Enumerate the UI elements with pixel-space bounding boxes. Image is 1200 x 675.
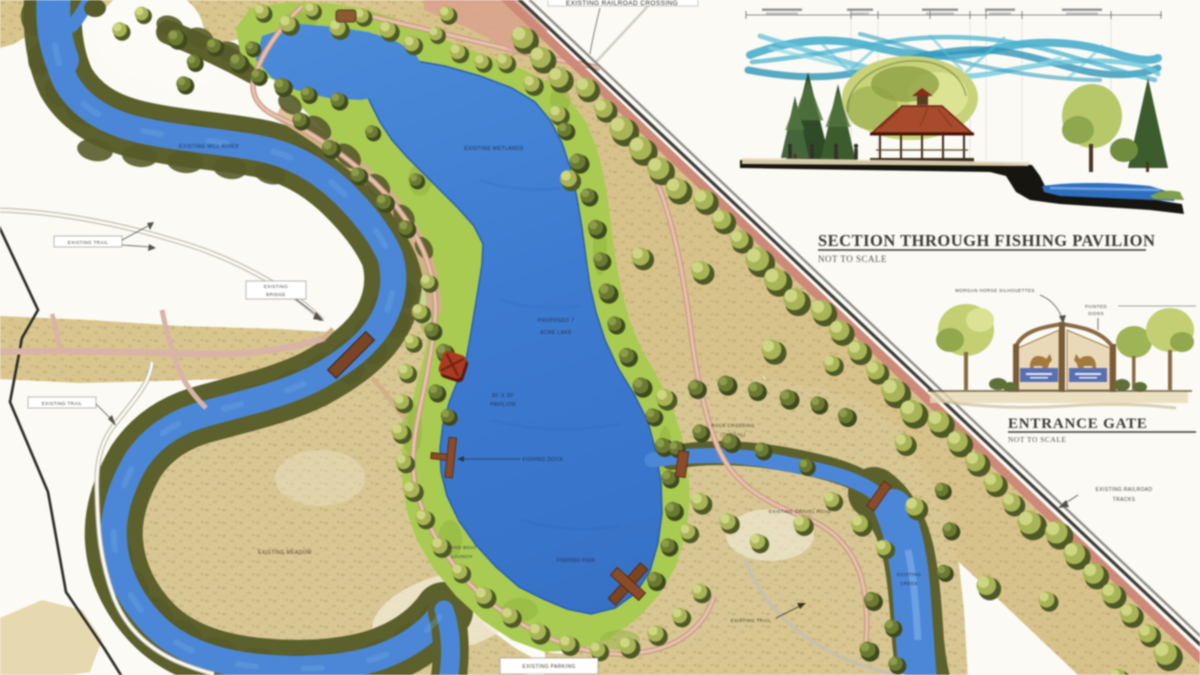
svg-text:PAINTED: PAINTED (1085, 304, 1107, 309)
svg-text:EXISTING GRAVEL ROAD: EXISTING GRAVEL ROAD (769, 509, 832, 514)
svg-text:SECTION THROUGH FISHING PAVILI: SECTION THROUGH FISHING PAVILION (818, 231, 1155, 250)
svg-text:ROCK CROSSING: ROCK CROSSING (711, 423, 755, 428)
svg-text:EXISTING PARKING: EXISTING PARKING (522, 664, 575, 670)
svg-text:(TYPICAL): (TYPICAL) (720, 432, 745, 437)
svg-text:ACRE LAKE: ACRE LAKE (540, 330, 572, 336)
svg-text:EXISTING: EXISTING (264, 284, 288, 289)
svg-text:LAUNCH: LAUNCH (452, 554, 473, 559)
svg-text:EXISTING: EXISTING (897, 572, 921, 577)
svg-text:NOT TO SCALE: NOT TO SCALE (818, 254, 887, 264)
svg-text:HAND BOAT: HAND BOAT (447, 545, 477, 550)
svg-text:EXISTING RAILROAD CROSSING: EXISTING RAILROAD CROSSING (566, 0, 678, 7)
svg-text:PROPOSED 7: PROPOSED 7 (538, 318, 575, 324)
svg-text:FISHING PIER: FISHING PIER (557, 558, 595, 564)
svg-text:ENTRANCE GATE: ENTRANCE GATE (1008, 416, 1148, 432)
svg-text:30' X 30': 30' X 30' (492, 393, 515, 399)
svg-text:SIGNS: SIGNS (1088, 311, 1104, 316)
svg-text:MORGAN HORSE SILHOUETTES: MORGAN HORSE SILHOUETTES (955, 288, 1035, 293)
svg-text:EXISTING MEADOW: EXISTING MEADOW (258, 550, 312, 556)
svg-text:TRACKS: TRACKS (1113, 497, 1136, 503)
svg-text:EXISTING MILL RIVER: EXISTING MILL RIVER (179, 144, 239, 150)
svg-text:EXISTING TRAIL: EXISTING TRAIL (68, 240, 109, 245)
svg-text:EXISTING RAILROAD: EXISTING RAILROAD (1095, 487, 1152, 493)
svg-text:CREEK: CREEK (900, 581, 918, 586)
svg-text:BRIDGE: BRIDGE (266, 292, 286, 297)
svg-text:EXISTING TRAIL: EXISTING TRAIL (731, 618, 772, 623)
svg-text:EXISTING WETLANDS: EXISTING WETLANDS (464, 146, 524, 152)
svg-text:PAVILION: PAVILION (490, 402, 516, 408)
svg-text:NOT TO SCALE: NOT TO SCALE (1008, 435, 1067, 444)
svg-text:FISHING DOCK: FISHING DOCK (523, 457, 564, 463)
svg-text:EXISTING TRAIL: EXISTING TRAIL (42, 401, 83, 406)
